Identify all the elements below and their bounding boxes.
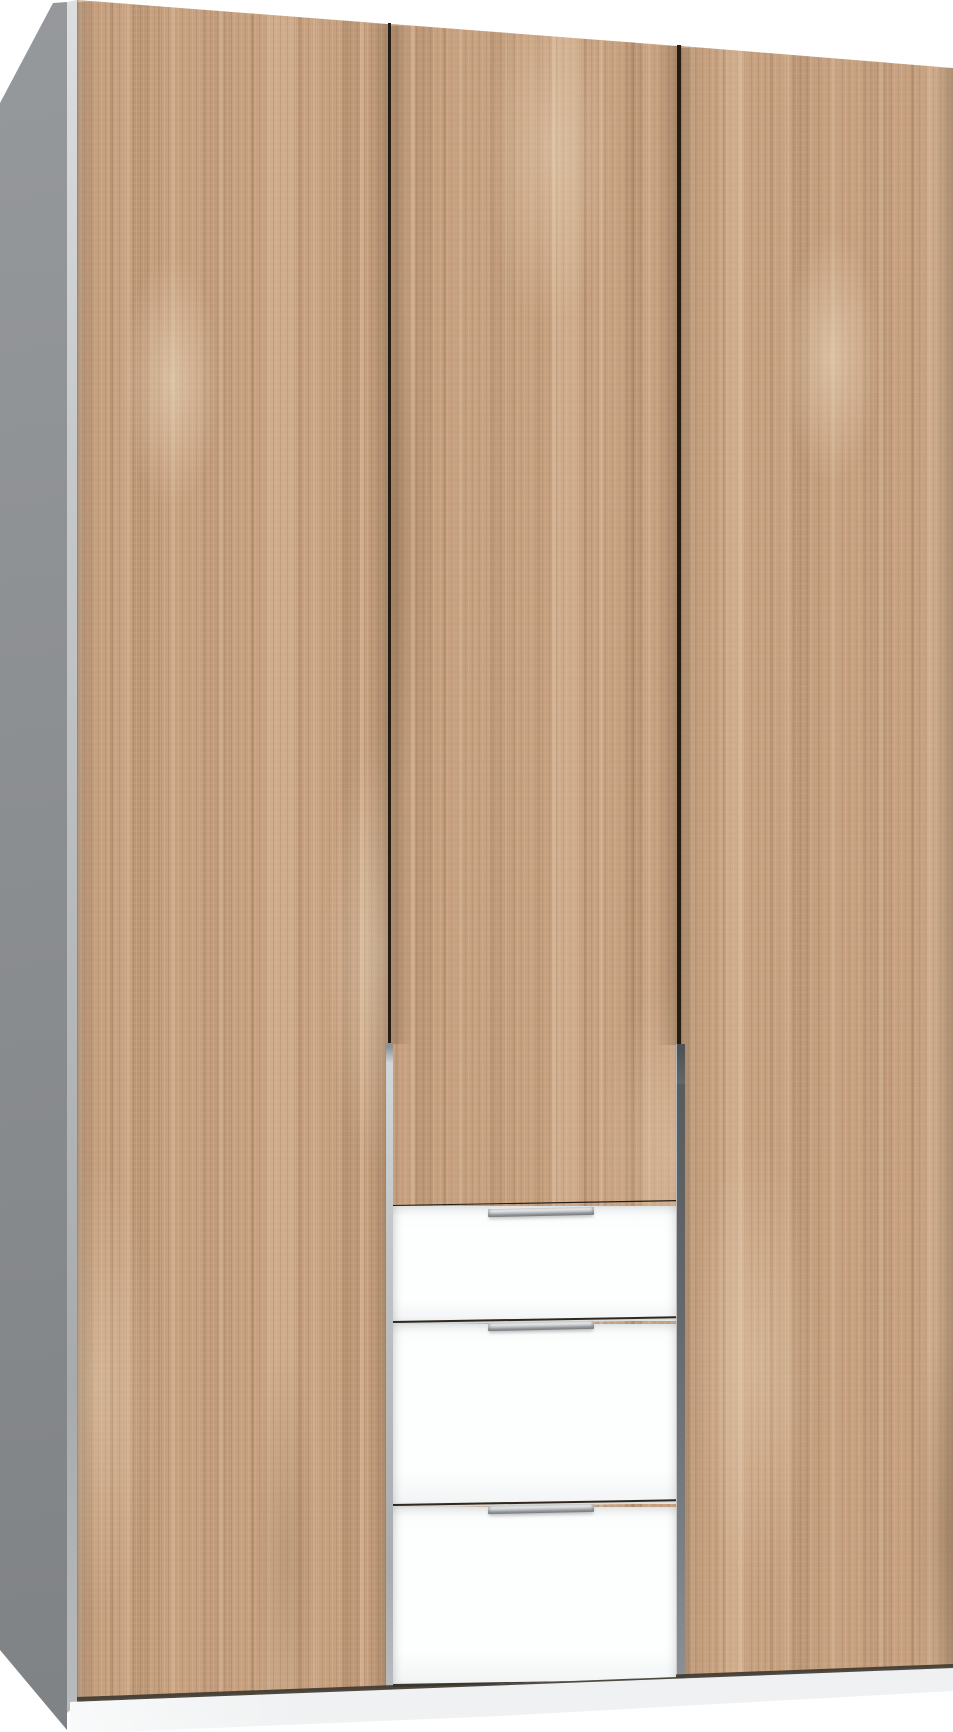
drawer-2 [393, 1324, 676, 1504]
door-gap-right [677, 45, 681, 1045]
drawer-3 [393, 1507, 676, 1684]
drawer-1 [393, 1206, 676, 1321]
drawer-unit [393, 1198, 676, 1694]
door-gap-left [388, 23, 391, 1044]
carcass-edge-left [386, 1043, 393, 1697]
wardrobe-product-photo [0, 0, 953, 1732]
carcass-edge-right [676, 1044, 685, 1684]
